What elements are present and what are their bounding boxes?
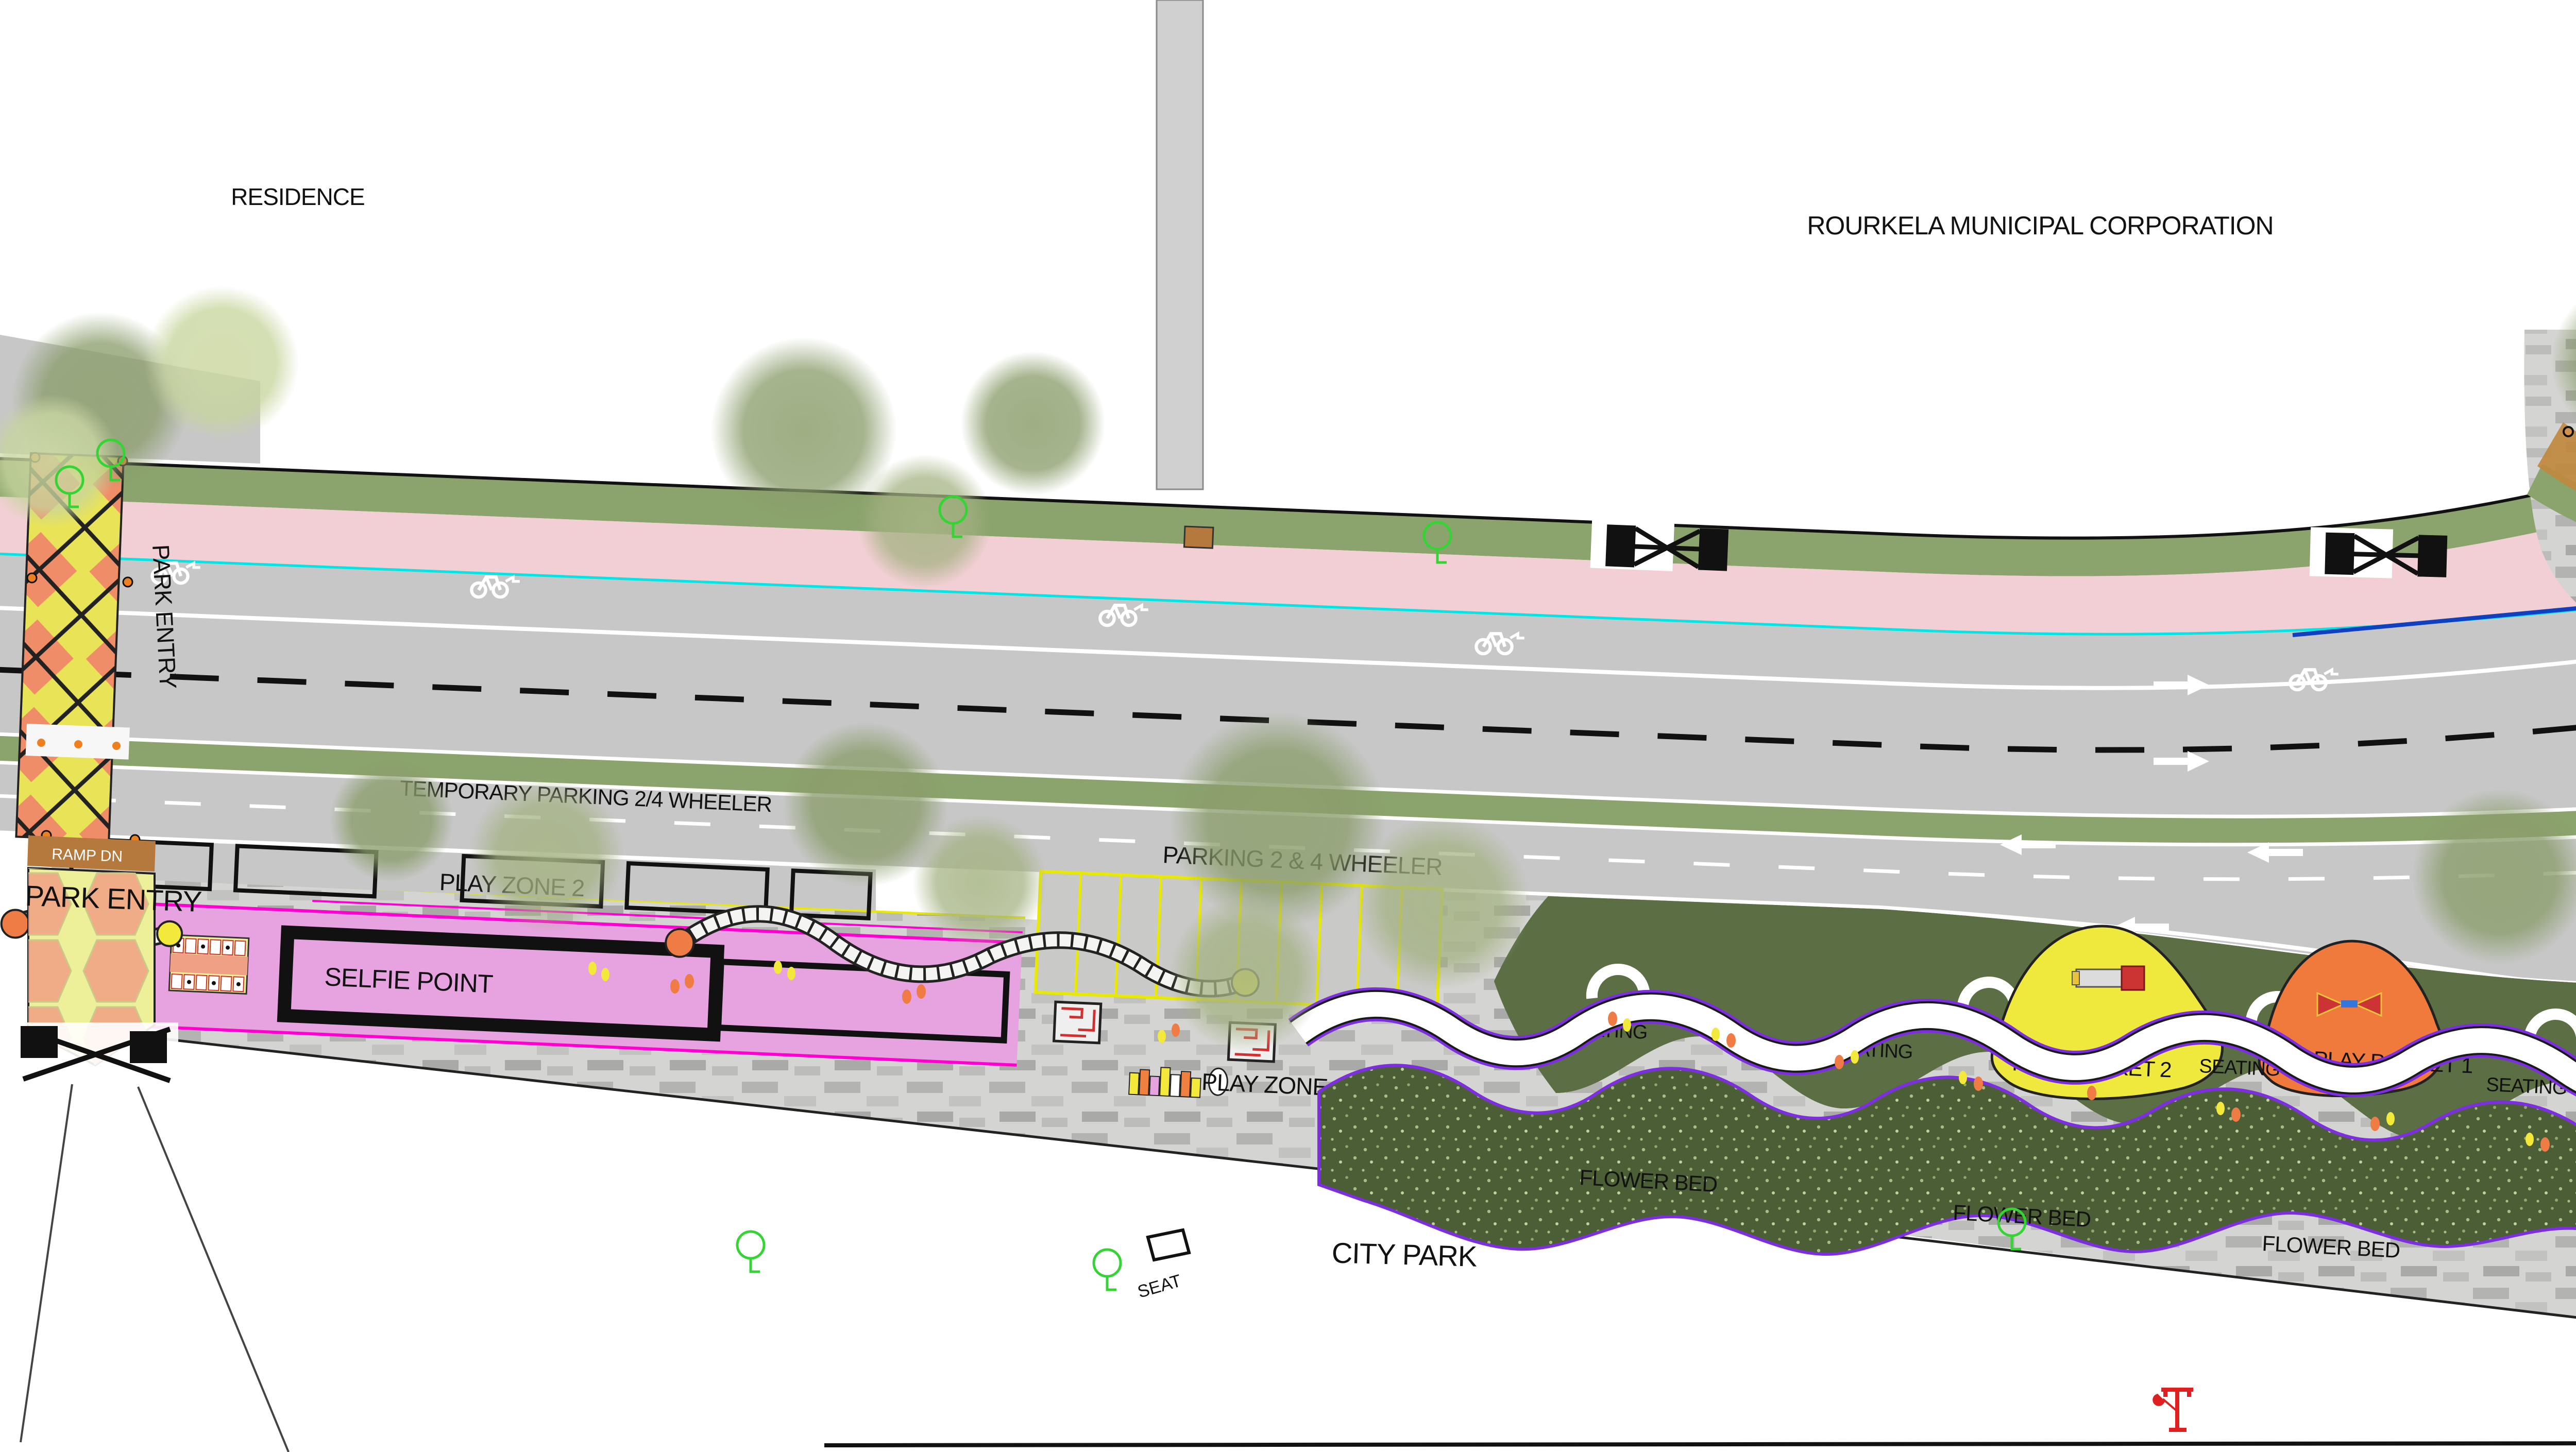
seesaw-icon: [2072, 966, 2144, 990]
planter-box: [1184, 526, 1213, 548]
municipal-corporation-label: ROURKELA MUNICIPAL CORPORATION: [1807, 211, 2273, 240]
ramp-dn-label: RAMP DN: [52, 846, 123, 865]
site-plan-canvas: STOP STOP WALKWAY 1.8M: [0, 0, 2576, 1452]
city-park-label: CITY PARK: [1331, 1236, 1478, 1272]
parcel-divider: [1157, 0, 1203, 489]
site-plan: STOP STOP WALKWAY 1.8M: [0, 0, 2576, 1452]
hopscotch-game: [169, 935, 249, 994]
park-entry-label: PARK ENTRY: [25, 879, 202, 918]
residence-label: RESIDENCE: [231, 183, 364, 210]
